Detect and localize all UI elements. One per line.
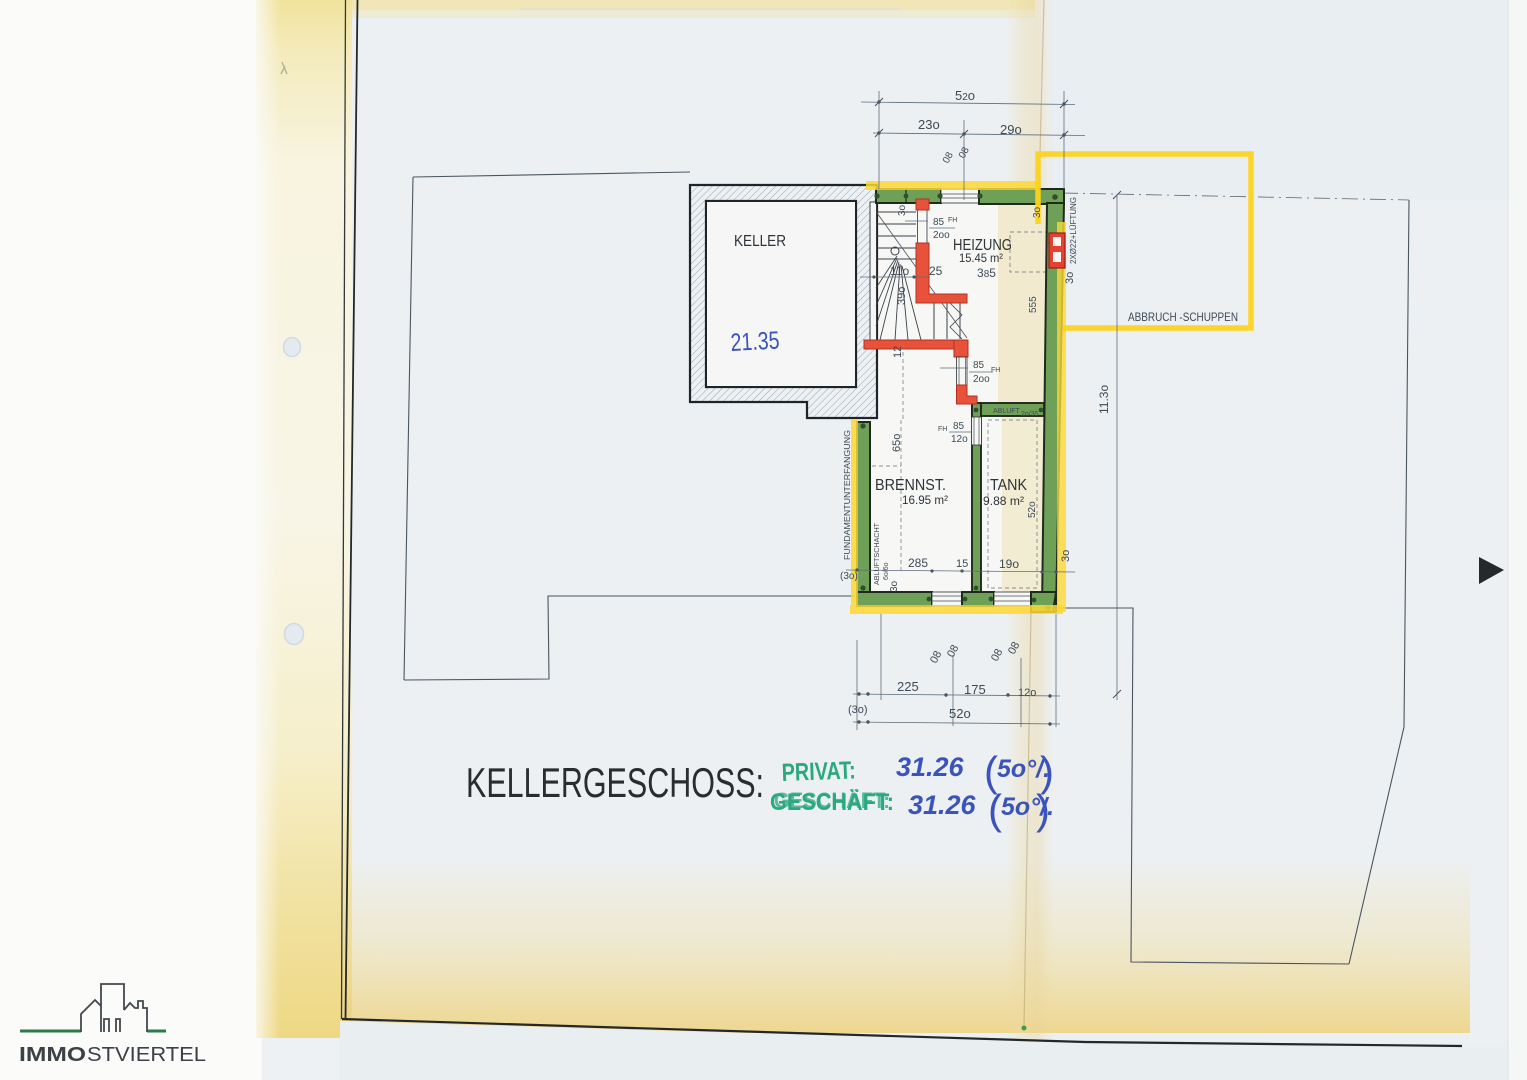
svg-text:2oo: 2oo [933,230,950,241]
svg-text:15: 15 [956,558,968,570]
svg-text:KELLER: KELLER [734,233,786,250]
svg-text:19o: 19o [999,557,1019,571]
svg-text:): ) [1036,786,1050,833]
svg-text:225: 225 [897,679,919,694]
svg-text:2oo: 2oo [973,374,990,385]
svg-text:GESCHÄFT:: GESCHÄFT: [774,788,890,813]
svg-text:12o: 12o [951,434,968,445]
svg-text:12: 12 [892,346,904,358]
svg-text:ABLUFT: ABLUFT [993,408,1021,415]
svg-text:FH: FH [938,426,947,433]
svg-text:3o: 3o [1064,272,1076,284]
svg-text:52o: 52o [949,706,971,721]
svg-text:(3o): (3o) [848,704,868,716]
svg-text:85: 85 [953,421,965,432]
svg-text:(: ( [988,786,1002,833]
svg-text:ABBRUCH -SCHUPPEN: ABBRUCH -SCHUPPEN [1128,310,1238,324]
svg-text:15.45 m²: 15.45 m² [959,251,1003,265]
svg-text:ABLUFTSCHACHT: ABLUFTSCHACHT [874,522,881,585]
svg-text:3o: 3o [1032,206,1043,218]
svg-text:3o: 3o [897,204,908,216]
svg-text:16.95 m²: 16.95 m² [902,493,948,507]
svg-text:BRENNST.: BRENNST. [875,477,946,494]
svg-text:FH: FH [991,367,1000,374]
svg-text:25: 25 [929,264,943,278]
svg-text:FH: FH [948,217,957,224]
svg-text:3o: 3o [1060,550,1072,562]
svg-text:285: 285 [908,556,928,570]
svg-text:KELLERGESCHOSS:: KELLERGESCHOSS: [466,759,764,806]
svg-text:(3o): (3o) [840,571,858,582]
svg-text:85: 85 [973,360,985,371]
svg-text:29o: 29o [1000,122,1022,137]
svg-text:11o: 11o [890,264,909,278]
svg-text:11.3o: 11.3o [1097,385,1111,414]
svg-text:IMMO: IMMO [19,1044,86,1066]
svg-text:23o: 23o [918,117,940,132]
svg-text:TANK: TANK [990,477,1027,494]
svg-text:21.35: 21.35 [730,326,780,357]
svg-text:FUNDAMENTUNTERFANGUNG: FUNDAMENTUNTERFANGUNG [843,430,852,560]
svg-text:9.88 m²: 9.88 m² [983,494,1024,508]
svg-text:52o: 52o [1027,501,1038,518]
svg-text:555: 555 [1028,296,1039,313]
svg-text:31.26: 31.26 [896,752,965,782]
svg-text:175: 175 [964,682,986,697]
svg-text:3o: 3o [889,580,900,592]
svg-text:PRIVAT:: PRIVAT: [781,756,856,787]
svg-text:STVIERTEL: STVIERTEL [87,1044,206,1066]
svg-text:385: 385 [977,266,996,280]
svg-text:2o/35: 2o/35 [1021,411,1039,418]
svg-text:31.26: 31.26 [908,790,977,820]
svg-text:39o: 39o [896,287,908,305]
svg-text:65o: 65o [891,434,903,452]
svg-text:85: 85 [933,217,945,228]
svg-text:12o: 12o [1018,687,1036,699]
svg-text:2XØ22+LÜFTUNG: 2XØ22+LÜFTUNG [1069,197,1078,264]
svg-text:6o/6o: 6o/6o [883,562,890,580]
